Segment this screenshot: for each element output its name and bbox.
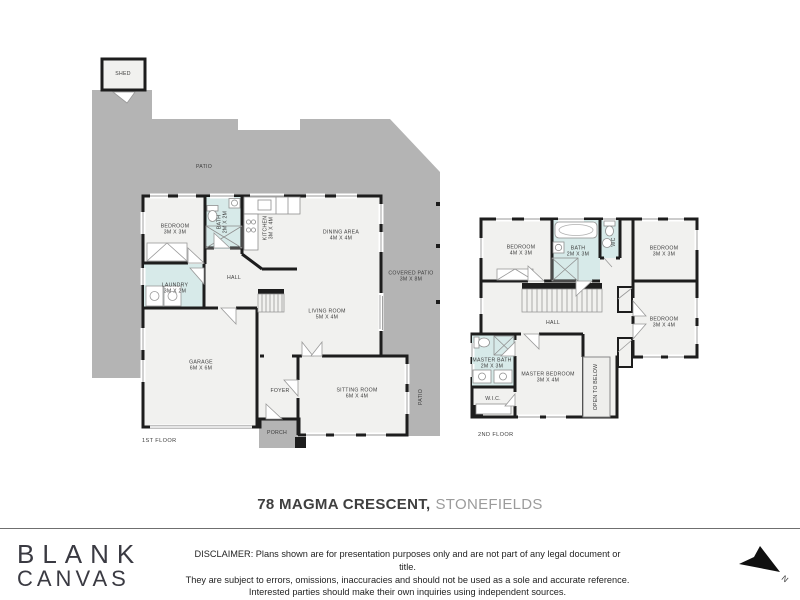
property-suburb: STONEFIELDS xyxy=(435,496,542,513)
disclaimer-line2: They are subject to errors, omissions, i… xyxy=(185,574,630,587)
room-label-bedroom2-f2: BEDROOM3M X 3M xyxy=(650,246,679,259)
first-floor-plan-graphic xyxy=(88,52,448,454)
room-label-hall-f1: HALL xyxy=(227,275,241,281)
room-label-wc: WC xyxy=(611,237,617,246)
room-label-master-bath: MASTER BATH2M X 3M xyxy=(472,358,511,371)
north-compass-icon: N xyxy=(737,543,789,587)
room-label-dining: DINING AREA4M X 4M xyxy=(323,230,359,243)
room-label-foyer: FOYER xyxy=(270,388,289,394)
room-label-open-below: OPEN TO BELOW xyxy=(593,364,599,411)
room-label-bedroom-f1: BEDROOM3M X 3M xyxy=(161,224,190,237)
room-label-sitting: SITTING ROOM6M X 4M xyxy=(336,388,377,401)
floor1-tag: 1ST FLOOR xyxy=(142,438,177,444)
room-label-shed: SHED xyxy=(115,71,130,77)
disclaimer-line3: Interested parties should make their own… xyxy=(185,586,630,599)
room-label-garage: GARAGE6M X 6M xyxy=(189,360,213,373)
footer-divider xyxy=(0,528,800,529)
compass-n-label: N xyxy=(780,574,789,585)
room-label-patio-top: PATIO xyxy=(196,164,212,170)
room-label-bedroom1-f2: BEDROOM4M X 3M xyxy=(507,245,536,258)
property-title: 78 MAGMA CRESCENT,STONEFIELDS xyxy=(0,496,800,513)
brand-logo: BLANK CANVAS xyxy=(17,541,142,590)
floorplan-sheet: SHED PATIO BEDROOM3M X 3M BATH2M X 2M KI… xyxy=(0,0,800,600)
room-label-patio-side: PATIO xyxy=(418,389,424,405)
room-label-bath-f1: BATH2M X 2M xyxy=(217,211,230,234)
room-label-master-bedroom: MASTER BEDROOM3M X 4M xyxy=(521,372,574,385)
disclaimer-text: DISCLAIMER: Plans shown are for presenta… xyxy=(185,548,630,599)
room-label-porch: PORCH xyxy=(267,430,287,436)
brand-line2: CANVAS xyxy=(17,567,142,590)
floor2-tag: 2ND FLOOR xyxy=(478,432,514,438)
disclaimer-line1: DISCLAIMER: Plans shown are for presenta… xyxy=(185,548,630,574)
property-address: 78 MAGMA CRESCENT, xyxy=(257,496,430,513)
room-label-wic: W.I.C. xyxy=(485,396,501,402)
room-label-laundry: LAUNDRY3M X 2M xyxy=(162,283,188,296)
stairs-2 xyxy=(522,283,602,312)
room-label-bedroom3-f2: BEDROOM3M X 4M xyxy=(650,317,679,330)
stairs xyxy=(258,289,284,312)
room-label-hall-f2: HALL xyxy=(546,320,560,326)
room-label-living: LIVING ROOM5M X 4M xyxy=(308,309,345,322)
brand-line1: BLANK xyxy=(17,541,142,567)
room-label-kitchen: KITCHEN3M X 4M xyxy=(263,216,276,241)
room-label-covered-patio: COVERED PATIO3M X 8M xyxy=(388,271,433,284)
room-label-bath-f2: BATH2M X 3M xyxy=(567,246,590,259)
